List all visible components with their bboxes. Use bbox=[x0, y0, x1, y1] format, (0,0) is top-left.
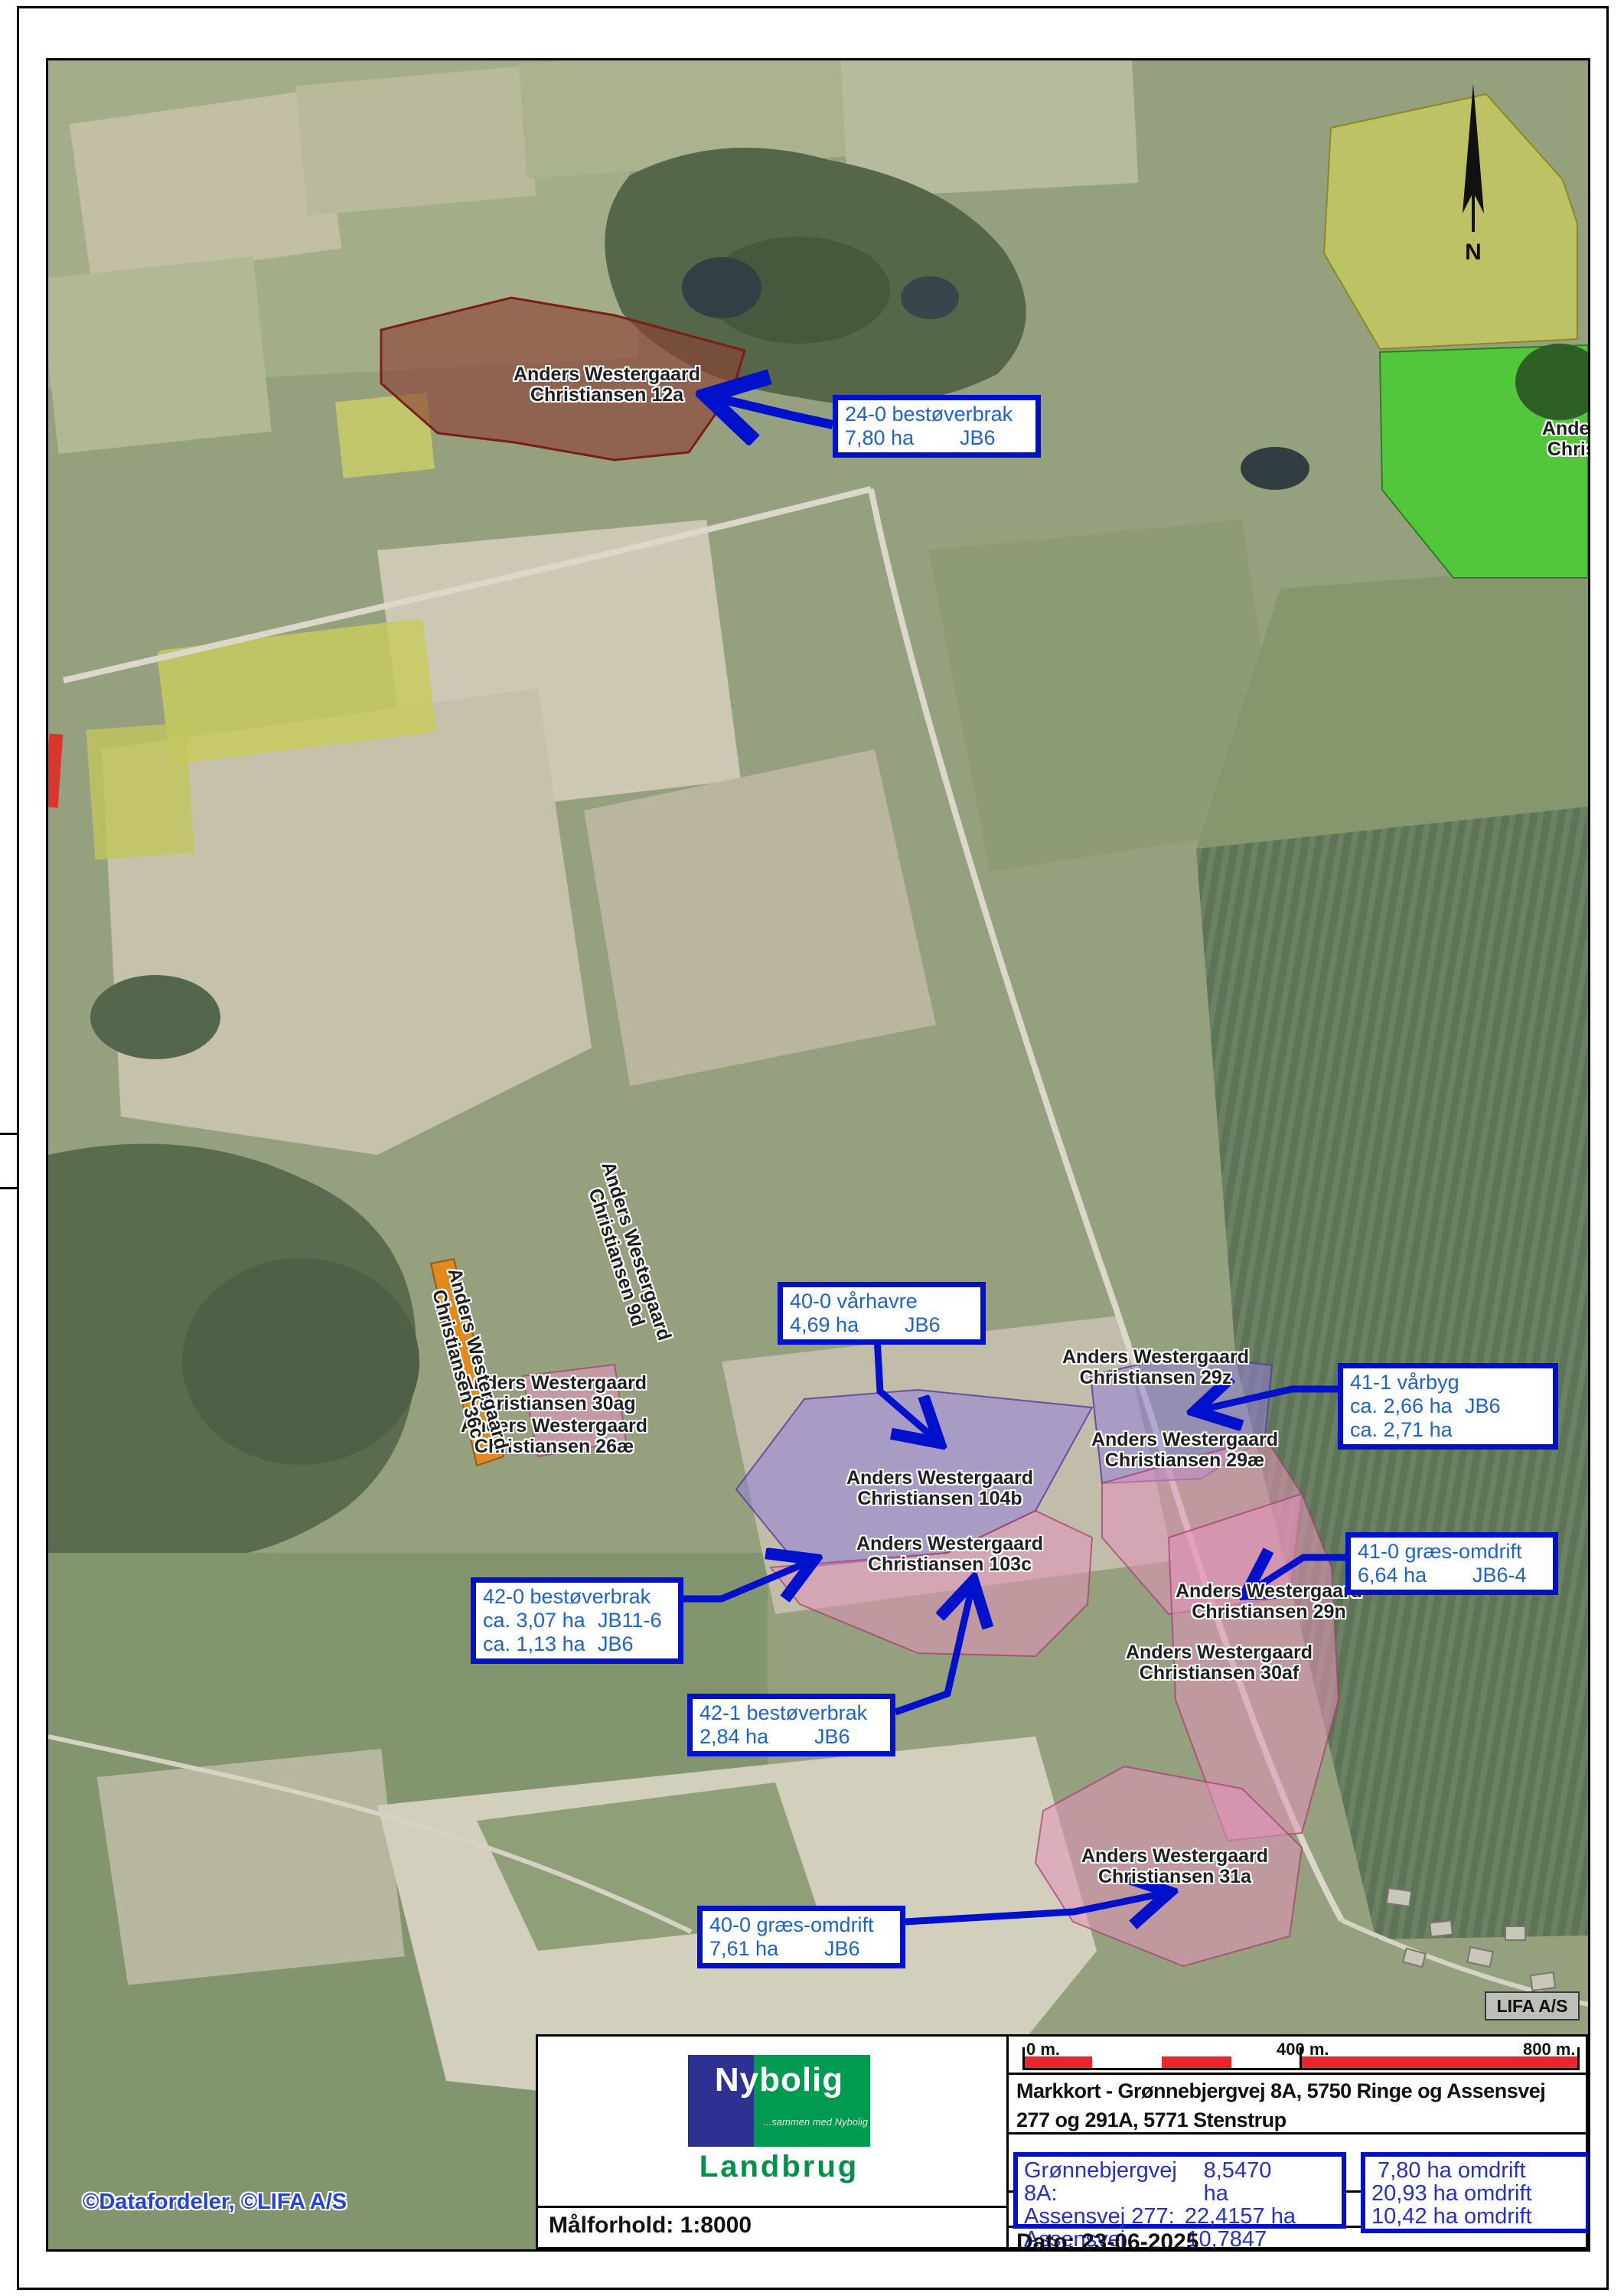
field-label-103c: Anders Westergaard Christiansen 103c bbox=[856, 1534, 1043, 1575]
nybolig-logo-square: Nybolig ...sammen med Nybolig bbox=[688, 2055, 870, 2147]
scale-bar bbox=[1022, 2056, 1580, 2070]
area-summary-box: Grønnebjergvej 8A:8,5470 ha Assensvej 27… bbox=[1013, 2152, 1346, 2229]
field-label-29ae: Anders Westergaard Christiansen 29æ bbox=[1091, 1430, 1278, 1471]
field-label-31a: Anders Westergaard Christiansen 31a bbox=[1081, 1846, 1268, 1887]
field-label-12a: Anders Westergaard Christiansen 12a bbox=[514, 364, 700, 406]
field-label-30af: Anders Westergaard Christiansen 30af bbox=[1126, 1642, 1313, 1684]
field-label-29z: Anders Westergaard Christiansen 29z bbox=[1062, 1347, 1249, 1388]
footer-panel: Nybolig ...sammen med Nybolig Landbrug 0… bbox=[536, 2034, 1588, 2249]
arrow-24-0 bbox=[710, 396, 833, 425]
nybolig-brand-text: Nybolig bbox=[688, 2061, 870, 2099]
attribution-text: ©Datafordeler, ©LIFA A/S bbox=[83, 2190, 347, 2215]
callout-40-0-vaarhavre: 40-0 vårhavre 4,69 haJB6 bbox=[778, 1282, 986, 1345]
footer-line-scale bbox=[1009, 2073, 1590, 2075]
field-label-ne-clipped: Anders Christ bbox=[1542, 419, 1590, 460]
date-label: Dato: 23-06-2025 bbox=[1016, 2229, 1198, 2252]
north-label: N bbox=[1465, 240, 1482, 266]
aerial-map: Anders Westergaard Christiansen 12a Ande… bbox=[46, 58, 1590, 2252]
omdrift-summary-box: 7,80 ha omdrift 20,93 ha omdrift 10,42 h… bbox=[1361, 2152, 1590, 2233]
fold-mark-upper bbox=[0, 1133, 17, 1135]
callout-42-1: 42-1 bestøverbrak 2,84 haJB6 bbox=[687, 1694, 895, 1756]
nybolig-division-text: Landbrug bbox=[688, 2150, 870, 2184]
callout-41-1: 41-1 vårbyg ca. 2,66 haJB6 ca. 2,71 ha bbox=[1338, 1363, 1558, 1450]
scale-ratio-label: Målforhold: 1:8000 bbox=[549, 2213, 752, 2239]
footer-divider-vertical bbox=[1006, 2037, 1009, 2247]
field-label-104b: Anders Westergaard Christiansen 104b bbox=[846, 1468, 1033, 1509]
map-title: Markkort - Grønnebjergvej 8A, 5750 Ringe… bbox=[1016, 2076, 1584, 2135]
lifa-badge: LIFA A/S bbox=[1485, 1991, 1580, 2020]
parcel-yellow-ne bbox=[1324, 94, 1577, 349]
callout-41-0: 41-0 græs-omdrift 6,64 haJB6-4 bbox=[1345, 1532, 1558, 1595]
callout-42-0: 42-0 bestøverbrak ca. 3,07 haJB11-6 ca. … bbox=[471, 1577, 683, 1664]
fold-mark-lower bbox=[0, 1187, 17, 1189]
nybolig-logo: Nybolig ...sammen med Nybolig Landbrug bbox=[538, 2037, 1006, 2206]
field-label-29n: Anders Westergaard Christiansen 29n bbox=[1176, 1581, 1362, 1623]
nybolig-tagline: ...sammen med Nybolig bbox=[761, 2116, 868, 2128]
parcel-red-sliver bbox=[48, 733, 63, 807]
footer-line-logo bbox=[538, 2206, 1006, 2208]
callout-40-0-graes: 40-0 græs-omdrift 7,61 haJB6 bbox=[697, 1906, 905, 1968]
callout-24-0: 24-0 bestøverbrak 7,80 haJB6 bbox=[833, 395, 1041, 458]
